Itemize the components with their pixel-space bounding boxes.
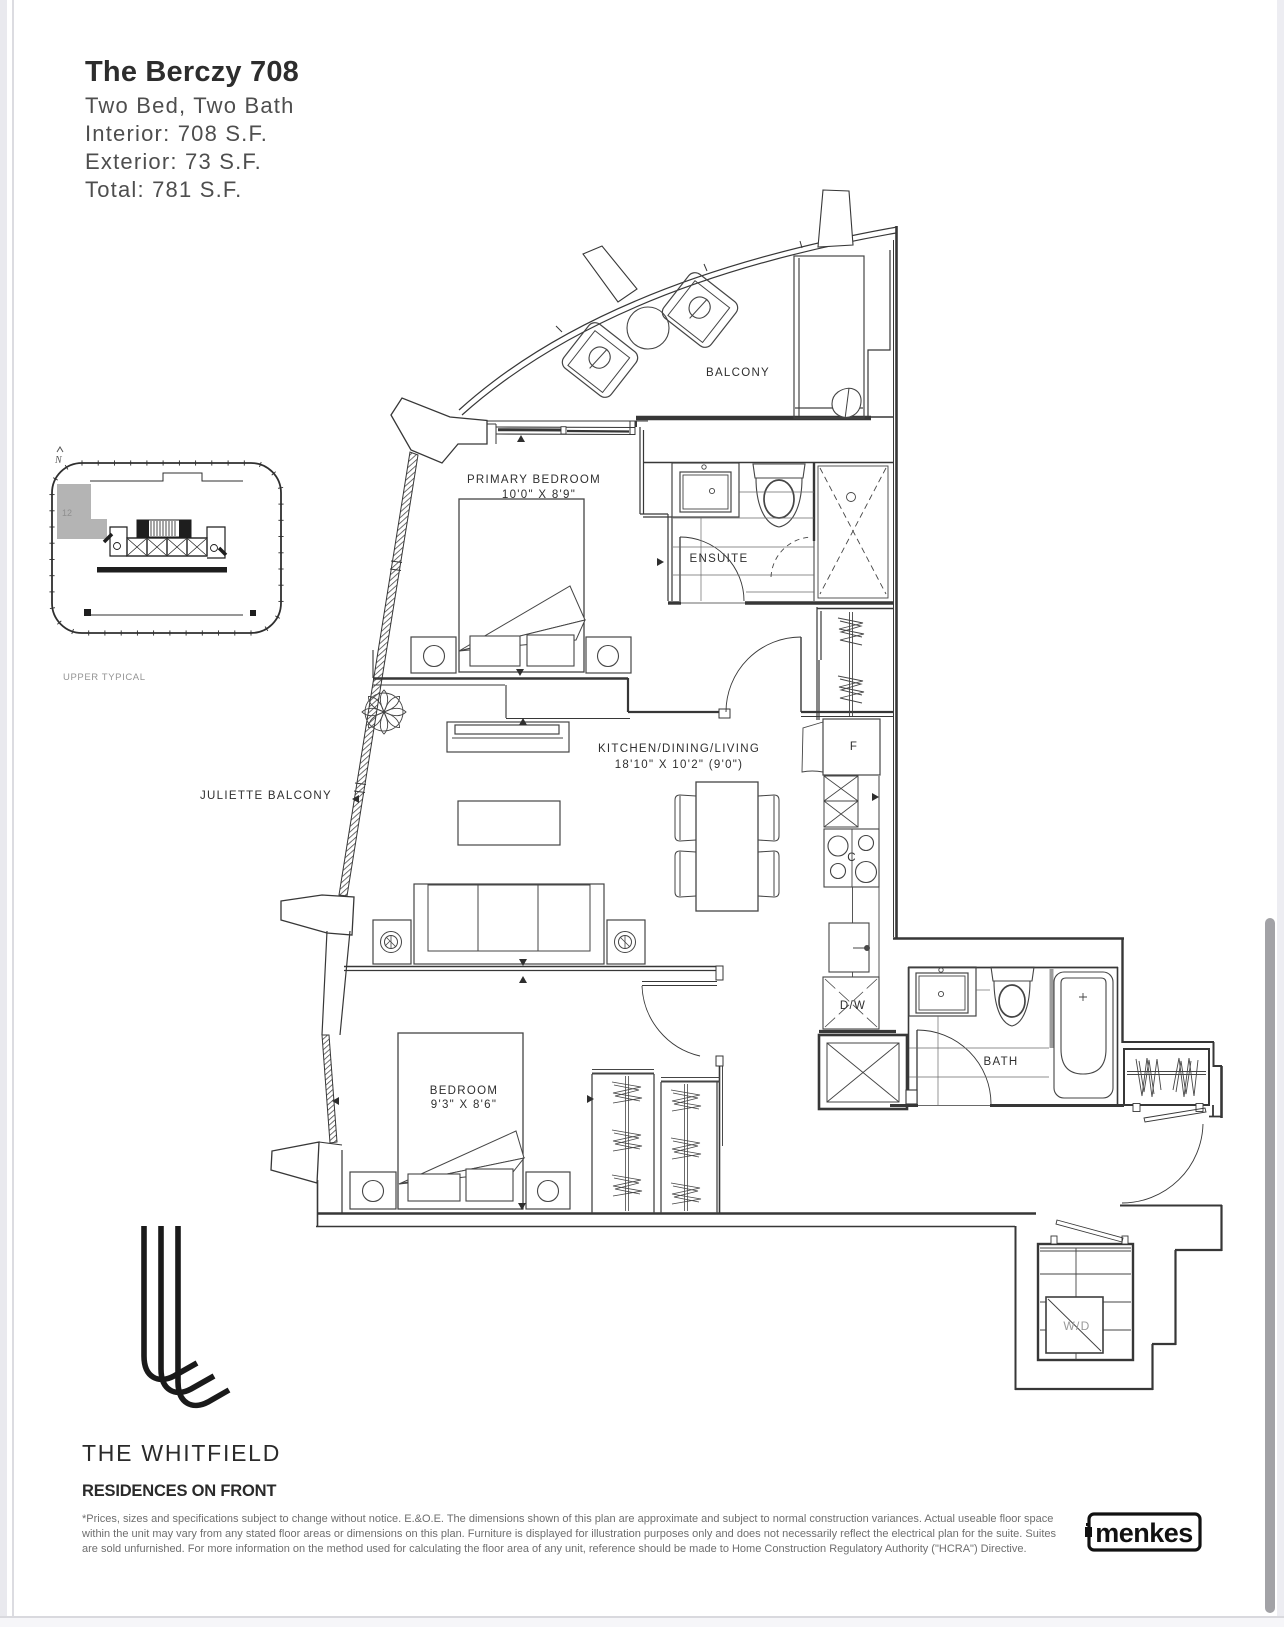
svg-text:W/D: W/D	[1063, 1319, 1090, 1333]
svg-text:C: C	[847, 852, 857, 864]
svg-text:BATH: BATH	[983, 1056, 1018, 1068]
svg-text:THE WHITFIELD: THE WHITFIELD	[82, 1440, 281, 1466]
svg-text:JULIETTE BALCONY: JULIETTE BALCONY	[200, 790, 332, 802]
svg-text:KITCHEN/DINING/LIVING: KITCHEN/DINING/LIVING	[598, 743, 760, 755]
svg-text:within the unit may vary from: within the unit may vary from any stated…	[81, 1528, 1056, 1540]
svg-text:UPPER TYPICAL: UPPER TYPICAL	[63, 672, 146, 683]
svg-text:RESIDENCES ON FRONT: RESIDENCES ON FRONT	[82, 1482, 276, 1500]
svg-text:*Prices, sizes and specificati: *Prices, sizes and specifications subjec…	[82, 1513, 1053, 1525]
svg-text:12: 12	[62, 508, 72, 518]
svg-text:BEDROOM: BEDROOM	[430, 1085, 499, 1097]
svg-text:D/W: D/W	[840, 1000, 866, 1012]
svg-text:menkes: menkes	[1095, 1518, 1193, 1548]
svg-text:BALCONY: BALCONY	[706, 367, 770, 379]
svg-text:are sold unfurnished. For more: are sold unfurnished. For more informati…	[82, 1543, 1027, 1555]
svg-text:18'10" X 10'2" (9'0"): 18'10" X 10'2" (9'0")	[615, 759, 744, 771]
svg-text:ENSUITE: ENSUITE	[690, 553, 749, 565]
svg-text:9'3" X 8'6": 9'3" X 8'6"	[431, 1099, 498, 1111]
svg-text:10'0" X 8'9": 10'0" X 8'9"	[502, 489, 576, 501]
svg-text:N: N	[54, 455, 63, 466]
svg-text:PRIMARY BEDROOM: PRIMARY BEDROOM	[467, 474, 601, 486]
svg-text:F: F	[850, 741, 858, 753]
